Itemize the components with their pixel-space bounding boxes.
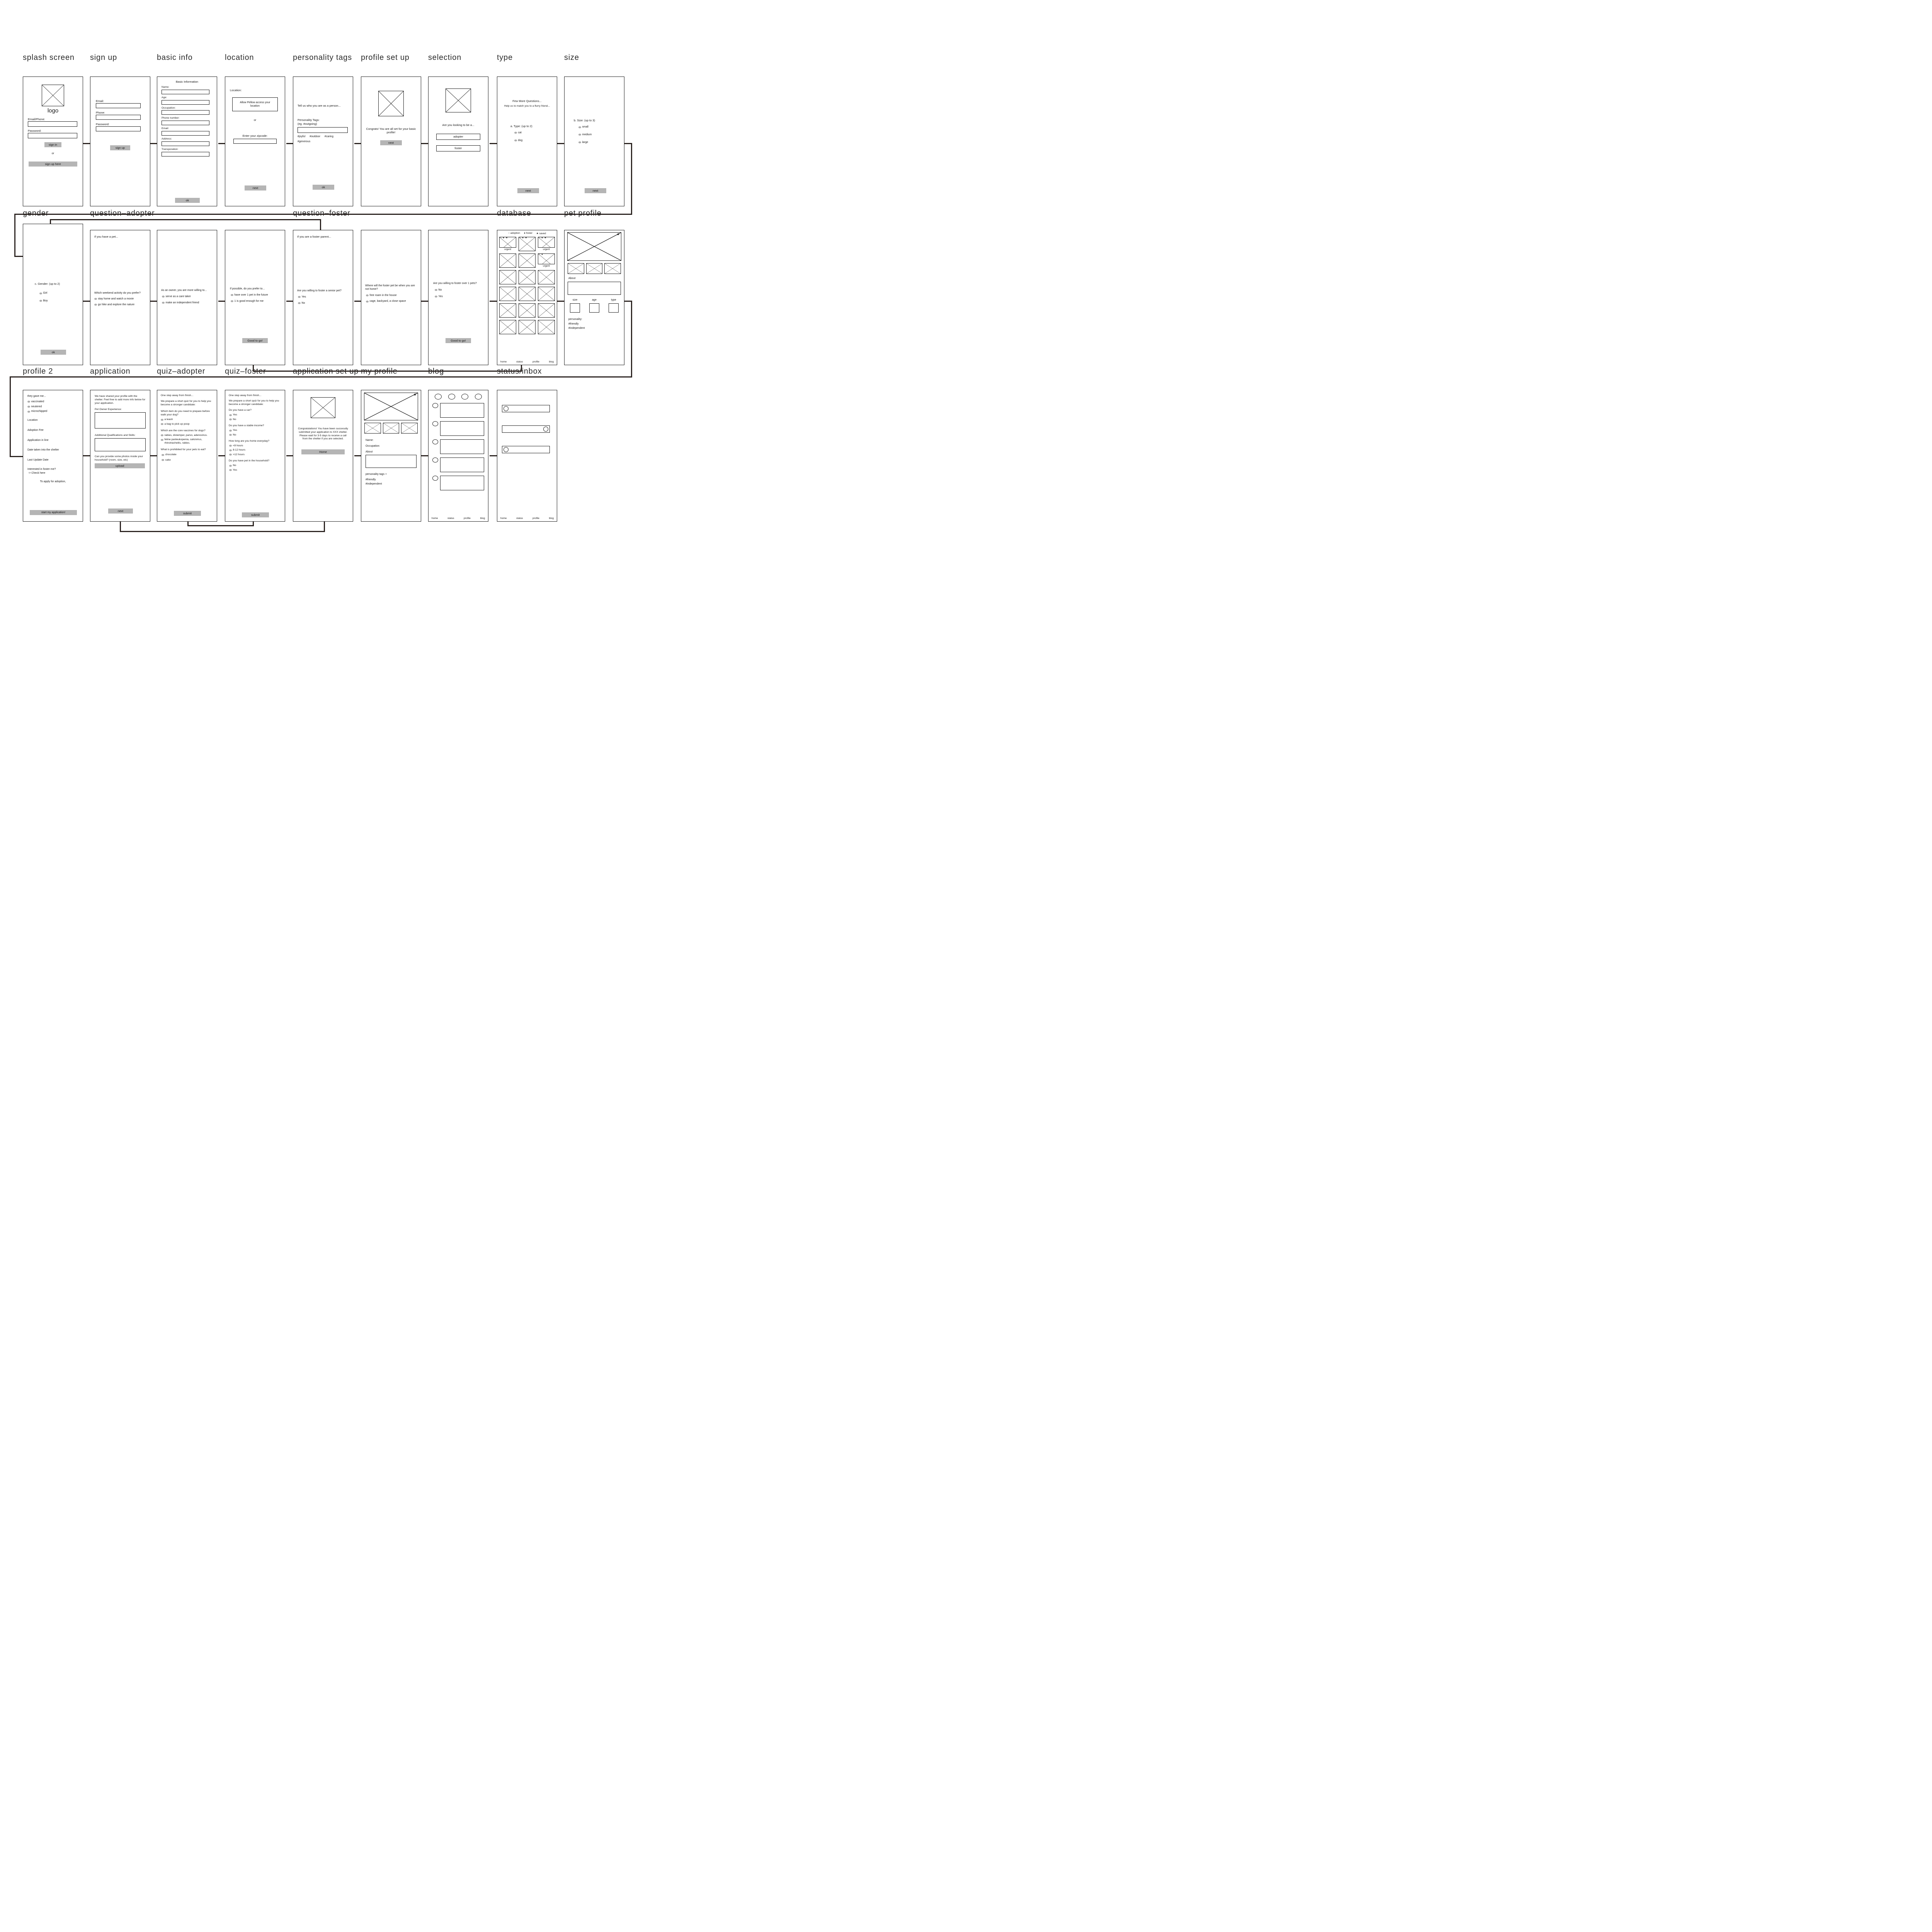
quiz-q1: Do you have a car? <box>229 409 282 412</box>
radio-label: have over 1 pet in the future <box>235 294 268 297</box>
wireframe-canvas: splash screen sign up basic info locatio… <box>0 0 638 580</box>
pet-card[interactable] <box>519 287 536 301</box>
radio-dot-icon[interactable] <box>161 434 163 436</box>
password-input[interactable] <box>28 133 77 138</box>
radio-dot-icon[interactable] <box>435 296 437 298</box>
screen-basicinfo: Basic Information Name: Age: Occupation:… <box>157 77 217 206</box>
message-bar[interactable] <box>502 446 550 453</box>
radio-option[interactable]: free roam in the house <box>366 294 418 298</box>
flow-connector <box>521 365 522 372</box>
card-status-icons: ○ ● <box>539 253 543 256</box>
email-input[interactable] <box>96 103 141 108</box>
radio-dot-icon[interactable] <box>161 419 163 421</box>
pet-image-placeholder <box>519 303 536 318</box>
legend-saved[interactable]: ★ saved <box>536 232 546 235</box>
radio-label: make an independent friend <box>166 301 199 305</box>
radio-dot-icon[interactable] <box>39 300 42 302</box>
ptags-hint: (eg. #outgoing) <box>298 122 353 126</box>
flow-connector <box>286 143 293 144</box>
radio-label: free roam in the house <box>370 294 397 298</box>
section-title-application: application <box>90 367 130 376</box>
pet-card[interactable]: ○ ● ★ <box>519 237 536 251</box>
tag-chip[interactable]: #outdoor <box>310 135 320 139</box>
next-button[interactable]: next <box>108 509 133 514</box>
radio-dot-icon[interactable] <box>27 401 30 403</box>
radio-label: dog <box>518 139 523 143</box>
radio-option[interactable]: go hike and explore the nature <box>94 303 148 307</box>
radio-dot-icon[interactable] <box>514 139 517 141</box>
radio-dot-icon[interactable] <box>366 294 369 296</box>
radio-dot-icon[interactable] <box>39 293 42 294</box>
screen-question-adopter-2: As an owner, you are more willing to... … <box>157 230 217 365</box>
radio-dot-icon[interactable] <box>162 459 164 461</box>
pet-image-placeholder <box>519 287 536 301</box>
submit-button[interactable]: submit <box>174 511 201 516</box>
foster-check-link[interactable]: -> Check here <box>28 472 83 475</box>
nav-home[interactable]: home <box>432 517 438 520</box>
pet-card[interactable] <box>519 253 536 268</box>
pet-image-placeholder <box>499 303 516 318</box>
section-title-type: type <box>497 53 513 62</box>
radio-dot-icon[interactable] <box>229 434 232 436</box>
nav-blog[interactable]: blog <box>549 517 554 520</box>
experience-textarea[interactable] <box>95 412 146 429</box>
check-neutered[interactable]: neutered <box>27 405 83 409</box>
screen-signup: Email: Phone: Password: sign up <box>90 77 150 206</box>
name-label: Name: <box>162 86 217 89</box>
radio-option[interactable]: Yes <box>229 469 282 472</box>
ptags-label: Personality Tags: <box>298 118 353 122</box>
flow-connector <box>557 301 565 302</box>
gender-question: c. Gender: (up to 2) <box>35 282 83 286</box>
screen-application: We have shared your profile with the she… <box>90 390 150 522</box>
post-avatar <box>432 476 438 481</box>
info-line: Date taken into the shelter <box>27 449 83 452</box>
ok-button[interactable]: ok <box>41 350 66 355</box>
flow-connector <box>218 143 225 144</box>
screen-petprofile: ★ About size age type personality: #frie… <box>564 230 624 365</box>
section-title-location: location <box>225 53 254 62</box>
flow-connector <box>253 521 254 526</box>
quiz-line2: We prepare a short quiz for you to help … <box>229 400 282 406</box>
nav-status[interactable]: status <box>516 361 523 363</box>
blog-post-row[interactable] <box>432 439 484 454</box>
urgent-badge: urgent <box>538 247 555 251</box>
radio-option[interactable]: 8-12 hours <box>229 449 282 452</box>
blog-post-row[interactable] <box>432 476 484 490</box>
screen-profile2: they gave me... vaccinated neutered micr… <box>23 390 83 522</box>
about-label: About <box>568 277 624 281</box>
blog-post-row[interactable] <box>432 421 484 436</box>
radio-dot-icon[interactable] <box>578 126 581 128</box>
transportation-label: Transporation: <box>162 148 217 151</box>
nav-status[interactable]: status <box>447 517 454 520</box>
message-bar[interactable] <box>502 405 550 412</box>
pet-thumb-placeholder[interactable] <box>604 263 621 274</box>
pet-card[interactable] <box>499 253 516 268</box>
flow-connector <box>490 301 497 302</box>
foster-dot-icon: ● <box>524 232 526 235</box>
next-button[interactable]: next <box>517 188 539 193</box>
check-label: vaccinated <box>31 400 44 404</box>
pet-image-placeholder <box>499 287 516 301</box>
radio-option[interactable]: >12 hours <box>229 453 282 456</box>
radio-dot-icon[interactable] <box>229 465 232 467</box>
radio-option[interactable]: Yes <box>435 295 486 299</box>
or-text: or <box>23 152 83 156</box>
radio-option[interactable]: a bag to pick up poop <box>161 423 214 426</box>
radio-dot-icon[interactable] <box>229 469 232 471</box>
check-label: microchipped <box>31 410 48 413</box>
selection-prompt: Are you looking to be a... <box>432 123 484 127</box>
nav-profile[interactable]: profile <box>532 517 539 520</box>
radio-option[interactable]: rabies, distemper, parvo, adenovirus. <box>161 434 215 437</box>
radio-option[interactable]: 1 is good enough for me <box>231 300 282 303</box>
pet-image-placeholder <box>499 270 516 284</box>
personality-tags-label[interactable]: personality tags + <box>366 473 421 476</box>
radio-dot-icon[interactable] <box>161 423 163 425</box>
pet-image-placeholder <box>538 270 555 284</box>
radio-dot-icon[interactable] <box>162 454 164 456</box>
congrats-message: Congrats! You are all set for your basic… <box>366 127 416 134</box>
adopter-button[interactable]: adopter <box>436 134 480 140</box>
pet-card[interactable] <box>519 303 536 318</box>
radio-option-girl[interactable]: Girl <box>39 292 83 295</box>
radio-option[interactable]: No <box>229 434 282 437</box>
screen-myprofile: ★ Name: Occupation: About personality ta… <box>361 390 421 522</box>
pet-card[interactable] <box>538 320 555 334</box>
email-input[interactable] <box>162 131 209 136</box>
pet-card[interactable] <box>519 270 536 284</box>
message-bar[interactable] <box>502 425 550 433</box>
sign-up-here-button[interactable]: sign up here <box>29 162 77 167</box>
pet-card[interactable] <box>499 303 516 318</box>
qf1-note: If you are a foster parent... <box>297 235 353 238</box>
radio-option[interactable]: cake <box>162 459 214 462</box>
selection-image-placeholder <box>446 88 471 112</box>
radio-option-boy[interactable]: Boy <box>39 299 83 303</box>
radio-option[interactable]: No <box>229 464 282 467</box>
allow-location-button[interactable]: Allow Pellow access your location <box>232 97 278 111</box>
radio-option[interactable]: Yes <box>229 429 282 432</box>
radio-label: feline panleukopenia, calicivirus, rhino… <box>165 438 216 445</box>
radio-option[interactable]: stay home and watch a movie <box>94 298 148 301</box>
pet-image-placeholder <box>538 320 555 334</box>
radio-label: Yes <box>233 469 237 472</box>
pet-card[interactable] <box>538 270 555 284</box>
radio-label: go hike and explore the nature <box>98 303 135 307</box>
logo-image-placeholder <box>42 85 64 106</box>
address-input[interactable] <box>162 141 209 146</box>
post-body <box>440 421 484 436</box>
radio-option[interactable]: have over 1 pet in the future <box>231 294 282 297</box>
submit-button[interactable]: submit <box>242 512 269 517</box>
radio-label: large <box>582 141 588 145</box>
qa3-question: If possible, do you prefer to... <box>230 287 282 291</box>
radio-dot-icon[interactable] <box>229 418 232 420</box>
flow-connector <box>150 301 157 302</box>
ok-button[interactable]: ok <box>175 198 200 203</box>
section-title-size: size <box>564 53 579 62</box>
radio-dot-icon[interactable] <box>578 134 581 136</box>
radio-option[interactable]: Yes <box>298 296 350 299</box>
good-to-go-button[interactable]: Good to go! <box>446 338 471 343</box>
story-avatar[interactable] <box>461 394 468 400</box>
radio-option-large[interactable]: large <box>578 141 624 145</box>
phone-number-label: Phone number: <box>162 117 217 120</box>
legend-foster[interactable]: ● foster <box>524 232 532 235</box>
radio-option[interactable]: cage, backyard, a close space <box>366 300 418 303</box>
radio-label: Girl <box>43 292 48 295</box>
radio-dot-icon[interactable] <box>514 132 517 134</box>
screen-location: Location: Allow Pellow access your locat… <box>225 77 285 206</box>
flow-connector <box>631 301 632 378</box>
radio-label: cage, backyard, a close space <box>370 300 406 303</box>
radio-dot-icon[interactable] <box>366 301 369 303</box>
nav-profile[interactable]: profile <box>464 517 471 520</box>
pet-photo-placeholder[interactable] <box>567 232 621 261</box>
next-button[interactable]: next <box>245 185 266 190</box>
flow-connector <box>10 376 11 457</box>
ptags-prompt: Tell us who you are as a person... <box>298 104 349 107</box>
screen-question-foster-2: Where will the foster pet be when you ar… <box>361 230 421 365</box>
home-button[interactable]: Home <box>301 449 345 454</box>
tag-chip[interactable]: #joyful <box>298 135 305 139</box>
size-question: b. Size: (up to 3) <box>574 119 624 122</box>
pet-image-placeholder <box>538 303 555 318</box>
pet-card[interactable]: ○ ●urgent <box>538 253 555 268</box>
upload-button[interactable]: upload <box>95 463 145 468</box>
radio-option[interactable]: make an independent friend <box>162 301 214 305</box>
profile-thumb-placeholder[interactable] <box>383 423 400 434</box>
size-attr-label: size <box>570 299 580 302</box>
email-phone-input[interactable] <box>28 121 77 127</box>
flow-connector <box>631 143 632 215</box>
password-input[interactable] <box>96 126 141 131</box>
about-box[interactable] <box>366 455 417 468</box>
sign-in-button[interactable]: sign in <box>44 142 61 147</box>
radio-option-cat[interactable]: cat <box>514 131 557 135</box>
blog-post-row[interactable] <box>432 457 484 472</box>
post-body <box>440 457 484 472</box>
story-avatar[interactable] <box>475 394 482 400</box>
about-label: About <box>366 451 421 454</box>
radio-dot-icon[interactable] <box>578 141 581 143</box>
radio-option[interactable]: No <box>229 418 282 421</box>
flow-connector <box>354 301 361 302</box>
screen-question-foster-1: If you are a foster parent... Are you wi… <box>293 230 353 365</box>
profile-tag: #friendly <box>366 478 421 482</box>
radio-label: No <box>439 289 442 292</box>
radio-dot-icon[interactable] <box>229 454 232 456</box>
good-to-go-button[interactable]: Good to go! <box>242 338 268 343</box>
pet-card[interactable] <box>499 320 516 334</box>
pet-thumb-placeholder[interactable] <box>586 263 603 274</box>
ok-button[interactable]: ok <box>313 185 334 190</box>
type-attr-box <box>609 303 619 313</box>
radio-option[interactable]: <8 hours <box>229 444 282 447</box>
appsetup-image-placeholder <box>311 397 335 418</box>
radio-option[interactable]: No <box>298 302 350 305</box>
age-attr-box <box>589 303 599 313</box>
radio-option-medium[interactable]: medium <box>578 133 624 137</box>
flow-connector <box>421 455 429 456</box>
card-status-icons: ○ ● ★ <box>519 237 527 239</box>
next-button[interactable]: next <box>380 140 402 145</box>
radio-dot-icon[interactable] <box>27 406 30 408</box>
zipcode-input[interactable] <box>233 139 277 144</box>
section-title-ptags: personality tags <box>293 53 352 62</box>
radio-dot-icon[interactable] <box>94 304 97 306</box>
radio-option[interactable]: No <box>435 289 486 292</box>
check-microchipped[interactable]: microchipped <box>27 410 83 413</box>
nav-profile[interactable]: profile <box>532 361 539 363</box>
post-avatar <box>432 457 438 463</box>
age-attr-label: age <box>589 299 599 302</box>
sender-avatar <box>503 447 509 452</box>
radio-dot-icon[interactable] <box>229 445 232 447</box>
pet-card[interactable] <box>538 303 555 318</box>
pet-thumb-placeholder[interactable] <box>568 263 584 274</box>
radio-dot-icon[interactable] <box>298 296 301 298</box>
sender-avatar <box>503 406 509 411</box>
radio-option-dog[interactable]: dog <box>514 139 557 143</box>
radio-dot-icon[interactable] <box>435 289 437 291</box>
screen-profilesetup: Congrats! You are all set for your basic… <box>361 77 421 206</box>
skills-textarea[interactable] <box>95 438 146 451</box>
story-avatar[interactable] <box>448 394 455 400</box>
radio-option[interactable]: serve as a care taker <box>162 295 214 299</box>
radio-label: cake <box>165 459 171 462</box>
quiz-q2: Do you have a stable income? <box>229 424 282 428</box>
radio-label: 8-12 hours <box>233 449 246 452</box>
type-line1: Few More Questions... <box>497 99 557 103</box>
qf3-question: Are you willing to foster over 1 pets? <box>433 282 485 286</box>
radio-dot-icon[interactable] <box>229 449 232 451</box>
radio-option[interactable]: feline panleukopenia, calicivirus, rhino… <box>161 438 215 445</box>
or-text: or <box>225 119 285 122</box>
pet-tag: #friendly <box>568 323 624 326</box>
section-title-signup: sign up <box>90 53 117 62</box>
pet-card[interactable] <box>519 320 536 334</box>
radio-dot-icon[interactable] <box>298 302 301 304</box>
radio-dot-icon[interactable] <box>229 430 232 432</box>
radio-dot-icon[interactable] <box>161 439 163 441</box>
phone-number-input[interactable] <box>162 121 209 125</box>
quiz-line2: We prepare a short quiz for you to help … <box>161 400 214 407</box>
legend-label: adoption <box>510 232 520 235</box>
urgent-badge: urgent <box>538 264 555 268</box>
saved-star-icon[interactable]: ★ <box>413 393 417 396</box>
profile-photo-placeholder[interactable] <box>364 393 418 420</box>
phone-input[interactable] <box>96 115 141 120</box>
pet-card[interactable] <box>538 287 555 301</box>
appsetup-message: Congratulations! You have been succesull… <box>298 427 349 441</box>
radio-option[interactable]: Yes <box>229 413 282 417</box>
tag-chip[interactable]: #caring <box>325 135 333 139</box>
address-label: Address: <box>162 138 217 141</box>
radio-dot-icon[interactable] <box>162 302 165 304</box>
start-application-button[interactable]: start my application! <box>30 510 77 515</box>
flow-connector <box>354 143 361 144</box>
radio-label: Boy <box>43 299 48 303</box>
pet-card[interactable]: ○ ● ★urgent <box>538 237 555 251</box>
type-attr-label: type <box>609 299 619 302</box>
radio-dot-icon[interactable] <box>162 296 165 298</box>
occupation-input[interactable] <box>162 110 209 115</box>
flow-connector <box>50 219 321 220</box>
nav-home[interactable]: home <box>500 361 507 363</box>
radio-dot-icon[interactable] <box>229 414 232 416</box>
photos-question: Can you provide some photos inside your … <box>95 455 146 462</box>
adoption-circle-icon: ○ <box>508 232 510 235</box>
nav-blog[interactable]: blog <box>480 517 485 520</box>
info-line: Application in line <box>27 439 83 442</box>
pet-image-placeholder <box>538 287 555 301</box>
profile-thumb-placeholder[interactable] <box>401 423 418 434</box>
flow-connector <box>490 143 497 144</box>
nav-blog[interactable]: blog <box>549 361 554 363</box>
pet-card[interactable] <box>499 287 516 301</box>
foster-button[interactable]: foster <box>436 145 480 151</box>
flow-connector <box>82 455 90 456</box>
radio-dot-icon[interactable] <box>231 300 233 302</box>
transportation-input[interactable] <box>162 152 209 156</box>
saved-star-icon[interactable]: ★ <box>617 233 620 236</box>
pet-card[interactable] <box>499 270 516 284</box>
radio-label: No <box>233 464 236 467</box>
screen-database: ○ adoption ● foster ★ saved ○ ● ★urgent … <box>497 230 557 365</box>
pet-image-placeholder <box>519 253 536 268</box>
tag-chip[interactable]: #generous <box>298 140 353 144</box>
nav-home[interactable]: home <box>500 517 507 520</box>
profile-thumb-placeholder[interactable] <box>364 423 381 434</box>
screen-type: Few More Questions... Help us to match y… <box>497 77 557 206</box>
next-button[interactable]: next <box>585 188 606 193</box>
post-avatar <box>432 421 438 426</box>
pet-card[interactable]: ○ ● ★urgent <box>499 237 516 251</box>
legend-adoption[interactable]: ○ adoption <box>508 232 520 235</box>
blog-post-row[interactable] <box>432 403 484 418</box>
sender-avatar <box>543 427 548 432</box>
story-avatar[interactable] <box>435 394 442 400</box>
info-line: Location <box>27 419 83 422</box>
nav-status[interactable]: status <box>516 517 523 520</box>
radio-dot-icon[interactable] <box>27 411 30 413</box>
radio-label: 1 is good enough for me <box>235 300 264 303</box>
ptags-input[interactable] <box>298 127 348 133</box>
radio-label: Yes <box>439 295 443 299</box>
sign-up-button[interactable]: sign up <box>110 145 130 150</box>
radio-dot-icon[interactable] <box>94 298 97 300</box>
flow-connector <box>421 143 429 144</box>
check-vaccinated[interactable]: vaccinated <box>27 400 83 404</box>
email-label: Email: <box>96 99 150 103</box>
age-input[interactable] <box>162 100 209 105</box>
screen-quizadopter: One step away from finish... We prepare … <box>157 390 217 522</box>
radio-option[interactable]: chocolate <box>162 453 214 456</box>
size-attr-box <box>570 303 580 313</box>
name-input[interactable] <box>162 90 209 94</box>
radio-dot-icon[interactable] <box>231 294 233 296</box>
flow-connector <box>14 256 24 257</box>
radio-option-small[interactable]: small <box>578 126 624 129</box>
qa2-question: As an owner, you are more willing to... <box>161 289 214 293</box>
post-body <box>440 476 484 490</box>
skills-label: Additional Qualifications and Skills: <box>95 434 150 437</box>
radio-option[interactable]: a leash <box>161 418 214 421</box>
profile-tag: #independent <box>366 483 421 486</box>
